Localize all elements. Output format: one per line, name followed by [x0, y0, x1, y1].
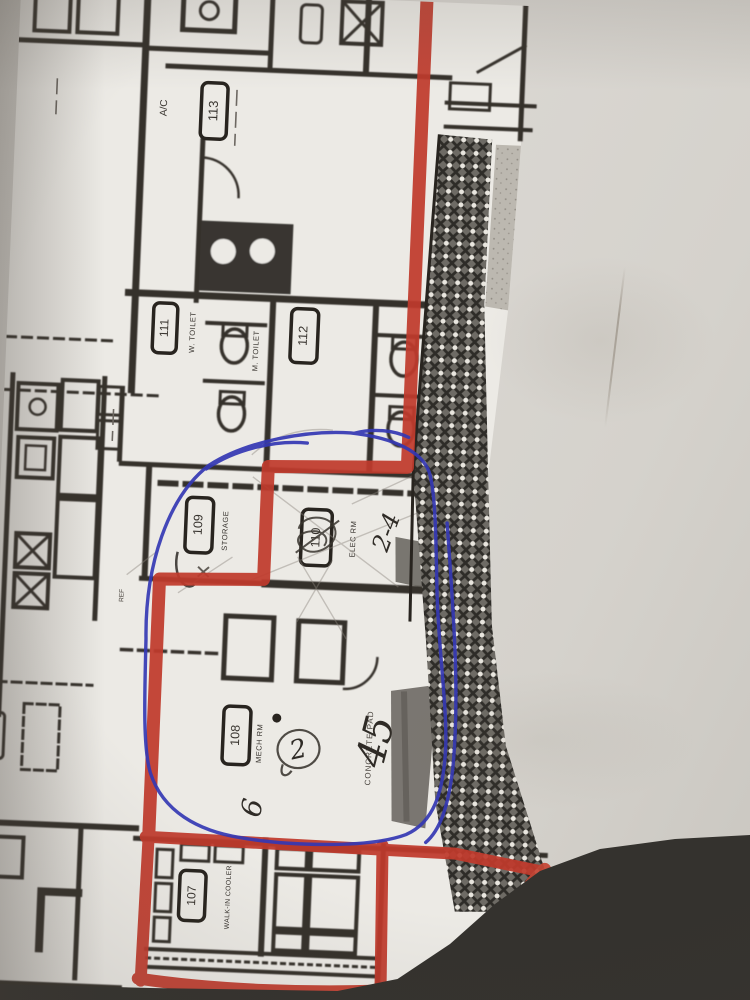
room-112-number: 112	[296, 326, 311, 347]
room-111-number: 111	[157, 318, 172, 337]
ac-label: A/C	[159, 99, 171, 116]
ref-label: REF	[118, 589, 126, 602]
floorplan-drawing: 113 A/C 111 W. TOILET 112 M. TOILET 109 …	[0, 0, 750, 1000]
room-108-number: 108	[228, 725, 243, 746]
room-108-name: MECH RM	[254, 724, 265, 764]
room-113-number: 113	[205, 100, 221, 121]
room-109-name: STORAGE	[220, 511, 231, 551]
room-107-number: 107	[184, 885, 199, 906]
floorplan-photo: 113 A/C 111 W. TOILET 112 M. TOILET 109 …	[0, 0, 750, 1000]
room-109-number: 109	[191, 514, 206, 535]
room-112-name: M. TOILET	[250, 330, 261, 371]
room-111-name: W. TOILET	[187, 311, 198, 353]
